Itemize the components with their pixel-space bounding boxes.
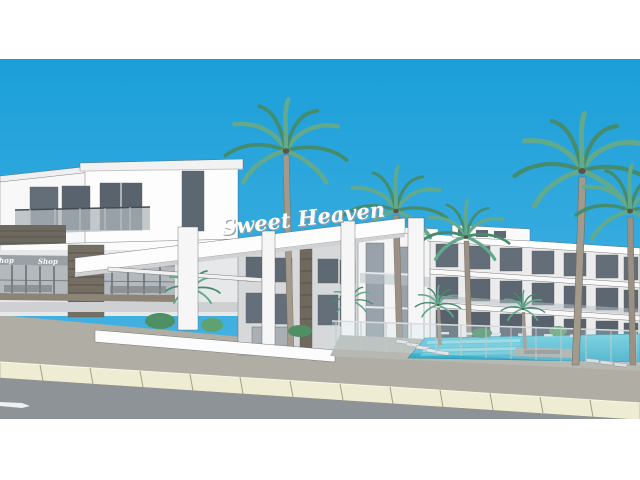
canopy-column [178,227,198,330]
shop-sign-text: Shop [38,257,58,266]
bush [145,313,175,329]
left-building [0,159,243,256]
bush [201,318,223,332]
bush [288,325,312,337]
letterbox-top [0,0,640,59]
render-scene: Shop Shop Shop [0,59,640,419]
architectural-rendering: Shop Shop Shop [0,0,640,480]
canopy-column [262,231,275,345]
letterbox-bottom [0,419,640,480]
shop-sign-text: Shop [0,256,14,265]
stone-pier [300,249,312,355]
